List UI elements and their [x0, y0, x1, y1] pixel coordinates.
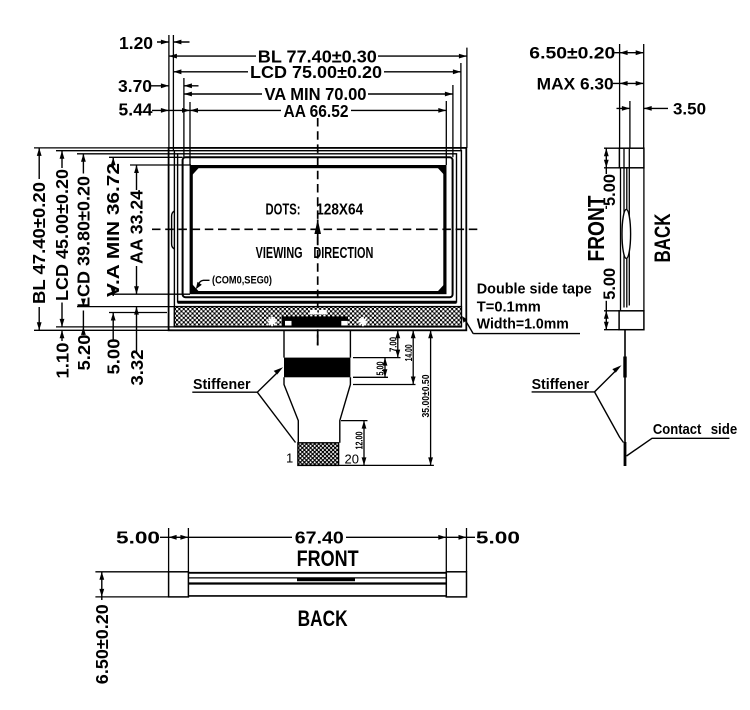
svg-text:1.20: 1.20 — [119, 33, 153, 53]
svg-text:3.32: 3.32 — [127, 349, 147, 385]
svg-text:5.00: 5.00 — [600, 268, 619, 300]
svg-text:5.20: 5.20 — [74, 334, 94, 370]
svg-text:35.00±0.50: 35.00±0.50 — [421, 374, 432, 417]
svg-text:LCD 45.00±0.20: LCD 45.00±0.20 — [52, 169, 72, 301]
svg-text:BACK: BACK — [298, 606, 349, 631]
svg-text:MAX 6.30: MAX 6.30 — [537, 74, 614, 93]
svg-text:BL 47.40±0.20: BL 47.40±0.20 — [29, 182, 49, 304]
svg-text:5.00: 5.00 — [476, 528, 520, 548]
svg-text:Double side tape: Double side tape — [477, 280, 592, 297]
svg-text:5.00: 5.00 — [116, 528, 160, 548]
svg-text:FRONT: FRONT — [583, 195, 609, 262]
svg-text:6.50±0.20: 6.50±0.20 — [92, 604, 112, 684]
svg-text:5.44: 5.44 — [119, 100, 153, 120]
svg-text:LCD 75.00±0.20: LCD 75.00±0.20 — [250, 62, 382, 82]
svg-text:T=0.1mm: T=0.1mm — [477, 299, 541, 316]
svg-text:Contact: Contact — [653, 421, 702, 438]
svg-text:AA 66.52: AA 66.52 — [284, 101, 349, 121]
svg-text:side: side — [711, 421, 738, 438]
svg-text:Stiffener: Stiffener — [532, 376, 590, 393]
svg-text:1.10: 1.10 — [52, 342, 72, 378]
svg-text:1: 1 — [286, 451, 293, 466]
svg-text:Width=1.0mm: Width=1.0mm — [477, 315, 569, 332]
svg-text:BACK: BACK — [650, 213, 675, 263]
svg-text:LCD 39.80±0.20: LCD 39.80±0.20 — [73, 176, 93, 308]
svg-text:3.70: 3.70 — [118, 76, 152, 96]
svg-text:7.00: 7.00 — [388, 337, 399, 352]
svg-text:12.00: 12.00 — [355, 431, 366, 449]
svg-text:FRONT: FRONT — [297, 546, 359, 571]
svg-text:20: 20 — [345, 452, 359, 467]
svg-text:DIRECTION: DIRECTION — [313, 245, 373, 262]
svg-text:5.00: 5.00 — [104, 338, 124, 374]
svg-text:AA 33.24: AA 33.24 — [127, 190, 147, 264]
svg-text:V.A MIN 36.72: V.A MIN 36.72 — [103, 163, 123, 297]
svg-text:VIEWING: VIEWING — [256, 245, 303, 262]
svg-text:67.40: 67.40 — [295, 528, 344, 548]
svg-text:5.00: 5.00 — [376, 361, 387, 375]
svg-text:(COM0,SEG0): (COM0,SEG0) — [212, 275, 272, 287]
svg-text:Stiffener: Stiffener — [193, 376, 251, 393]
svg-text:3.50: 3.50 — [673, 100, 706, 119]
svg-text:DOTS:: DOTS: — [266, 202, 301, 219]
svg-text:14.00: 14.00 — [404, 344, 415, 361]
svg-text:6.50±0.20: 6.50±0.20 — [529, 44, 615, 63]
svg-text:128X64: 128X64 — [316, 202, 363, 219]
